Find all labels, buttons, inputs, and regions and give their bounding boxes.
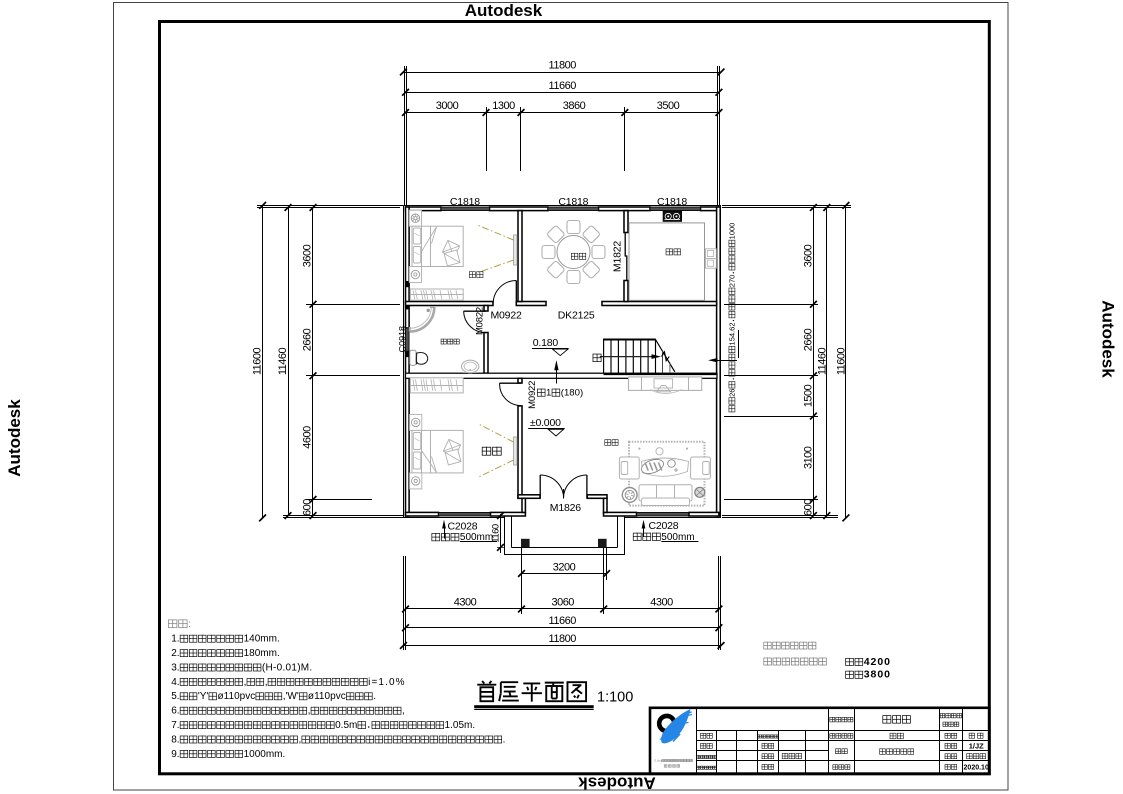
svg-text:11800: 11800 <box>549 633 577 645</box>
svg-text:.: . <box>503 734 506 745</box>
svg-text:600: 600 <box>803 499 815 516</box>
svg-text:1: 1 <box>546 388 551 399</box>
svg-text:M1822: M1822 <box>612 241 624 272</box>
svg-text:3600: 3600 <box>302 244 314 267</box>
svg-text:6.: 6. <box>171 706 179 717</box>
svg-text:0.5m: 0.5m <box>335 720 357 731</box>
svg-text:4300: 4300 <box>454 596 477 608</box>
svg-text:C1818: C1818 <box>450 196 480 208</box>
svg-text:DK2125: DK2125 <box>558 309 595 321</box>
svg-text:8.: 8. <box>171 734 179 745</box>
svg-text:2.: 2. <box>171 648 179 659</box>
svg-text:4200: 4200 <box>864 656 890 668</box>
svg-text:11600: 11600 <box>835 347 847 375</box>
svg-text:3060: 3060 <box>551 596 574 608</box>
svg-text:2660: 2660 <box>302 328 314 351</box>
svg-text:9.: 9. <box>171 749 179 760</box>
svg-text:,: , <box>244 677 247 688</box>
svg-text:Autodesk: Autodesk <box>465 1 543 20</box>
svg-text:,: , <box>308 706 311 717</box>
svg-text:1:100: 1:100 <box>597 690 633 706</box>
svg-text:0.180: 0.180 <box>533 337 559 349</box>
svg-text:2660: 2660 <box>803 328 815 351</box>
svg-text:3800: 3800 <box>864 669 890 681</box>
svg-text:(180): (180) <box>561 388 583 399</box>
svg-text:C0918: C0918 <box>398 326 408 352</box>
svg-text:1.: 1. <box>171 634 179 645</box>
svg-text:M1826: M1826 <box>550 502 581 514</box>
svg-text:i=1.0%: i=1.0% <box>368 677 405 688</box>
svg-text:1000: 1000 <box>727 223 736 240</box>
svg-text:G.Ling: G.Ling <box>654 759 662 763</box>
svg-text:,: , <box>299 734 302 745</box>
svg-text::: : <box>188 619 191 630</box>
svg-text:3860: 3860 <box>563 100 586 112</box>
svg-text:C1818: C1818 <box>657 196 687 208</box>
svg-text:M0822: M0822 <box>474 307 485 335</box>
svg-text:600: 600 <box>302 499 314 516</box>
svg-text:3600: 3600 <box>803 244 815 267</box>
svg-text:11460: 11460 <box>277 347 289 375</box>
svg-text:C2028: C2028 <box>448 520 478 532</box>
svg-text:2020.10: 2020.10 <box>964 765 989 772</box>
svg-text:180mm.: 180mm. <box>244 648 280 659</box>
svg-text:1000mm.: 1000mm. <box>244 749 286 760</box>
svg-text:,: , <box>402 706 405 717</box>
svg-text:1300: 1300 <box>492 100 515 112</box>
svg-text:1500: 1500 <box>803 384 815 407</box>
svg-text:,: , <box>265 677 268 688</box>
svg-text:7.: 7. <box>171 720 179 731</box>
svg-text:.: . <box>373 691 376 702</box>
svg-text:1/JZ: 1/JZ <box>969 742 984 751</box>
svg-text:4600: 4600 <box>302 426 314 449</box>
svg-text:3000: 3000 <box>436 100 459 112</box>
svg-text:Autodesk: Autodesk <box>1099 300 1118 378</box>
svg-text:11460: 11460 <box>816 347 828 375</box>
svg-text:C2028: C2028 <box>649 520 679 532</box>
svg-text:ø110pvc: ø110pvc <box>217 691 255 702</box>
svg-text:ø110pvc: ø110pvc <box>308 691 346 702</box>
svg-text:140mm.: 140mm. <box>244 634 280 645</box>
svg-text:11660: 11660 <box>549 80 577 92</box>
svg-text:Autodesk: Autodesk <box>5 399 24 477</box>
svg-text:4.: 4. <box>171 677 179 688</box>
svg-text:±0.000: ±0.000 <box>530 417 561 429</box>
svg-text:C1818: C1818 <box>558 196 588 208</box>
svg-text:Autodesk: Autodesk <box>578 774 656 793</box>
svg-text:,'W': ,'W' <box>283 691 299 702</box>
svg-text:M0922: M0922 <box>491 309 522 321</box>
svg-text:3.: 3. <box>171 662 179 673</box>
svg-text:M0922: M0922 <box>527 381 538 409</box>
svg-text:154.62: 154.62 <box>727 323 736 346</box>
svg-text:1.05m.: 1.05m. <box>445 720 476 731</box>
svg-text:3500: 3500 <box>657 100 680 112</box>
svg-text:26: 26 <box>727 389 736 397</box>
svg-text:11660: 11660 <box>549 615 577 627</box>
svg-text:(H-0.01)M.: (H-0.01)M. <box>262 662 312 673</box>
svg-text:3100: 3100 <box>803 446 815 469</box>
svg-text:5.: 5. <box>171 691 179 702</box>
svg-text:'Y': 'Y' <box>198 691 209 702</box>
svg-text:4300: 4300 <box>650 596 673 608</box>
svg-text:11800: 11800 <box>549 60 577 72</box>
svg-text:270: 270 <box>727 275 736 288</box>
svg-text:11600: 11600 <box>252 347 264 375</box>
svg-text:3200: 3200 <box>553 562 576 574</box>
